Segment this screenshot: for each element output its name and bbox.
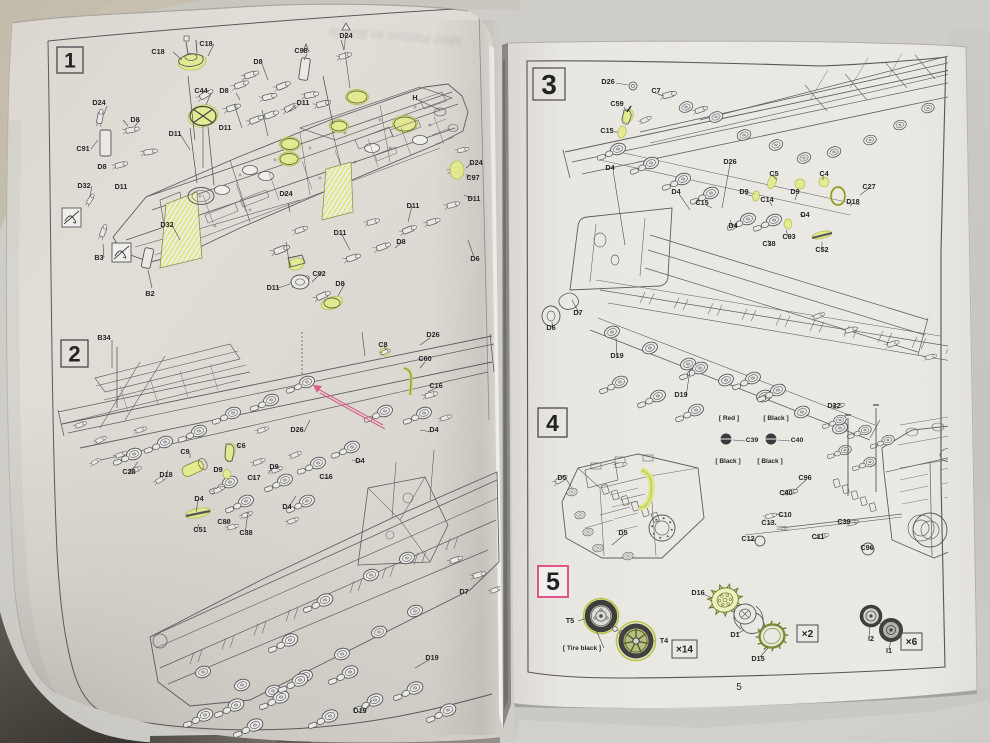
svg-text:5: 5 bbox=[736, 682, 742, 693]
